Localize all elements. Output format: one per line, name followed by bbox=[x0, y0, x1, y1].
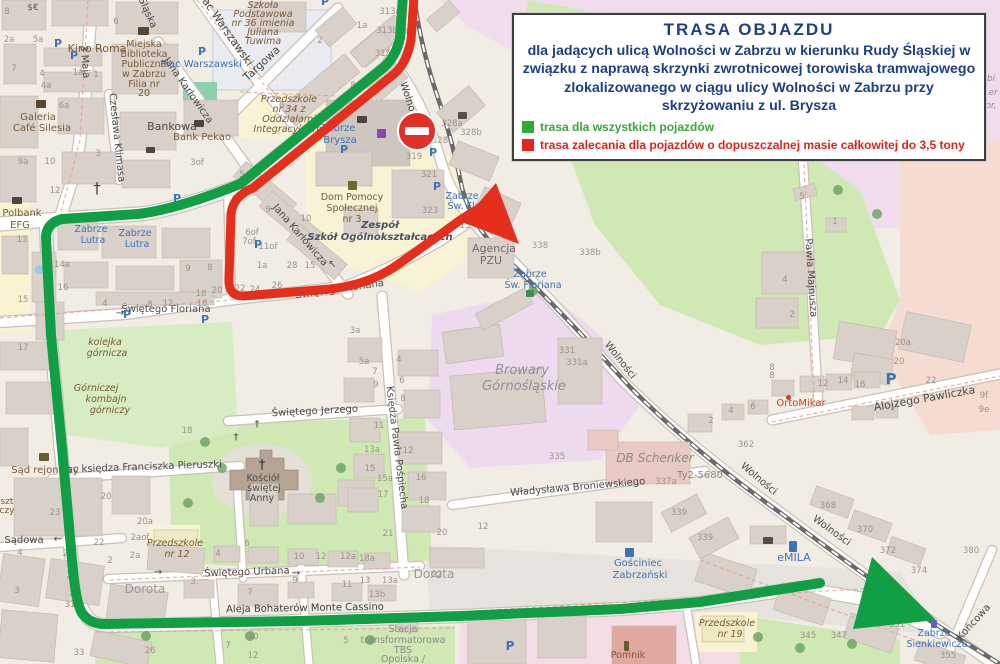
house-number: 20 bbox=[212, 286, 223, 296]
poi-label: 20 bbox=[138, 88, 150, 99]
house-number: 2 bbox=[708, 416, 713, 426]
parking-icon: P bbox=[506, 639, 515, 653]
parking-icon: P bbox=[429, 146, 437, 159]
house-number: 337a bbox=[655, 477, 676, 487]
poi-label: kolejka bbox=[88, 337, 122, 348]
poi-label: nr 12 bbox=[164, 549, 189, 560]
edge-label-fragment: bi bbox=[987, 74, 996, 84]
poi-label: eMILA bbox=[777, 551, 811, 564]
house-number: 3a bbox=[350, 326, 361, 336]
house-number: 17 bbox=[378, 490, 389, 500]
monument-icon bbox=[624, 641, 629, 651]
building bbox=[52, 0, 108, 26]
house-number: 6a bbox=[59, 101, 70, 111]
poi-label: Pomnik bbox=[611, 650, 646, 661]
house-number: 4 bbox=[782, 275, 787, 285]
house-number: 18 bbox=[197, 299, 208, 309]
house-number: 13b bbox=[369, 590, 385, 600]
house-number: 355 bbox=[940, 651, 956, 661]
parking-icon: P bbox=[70, 49, 78, 62]
house-number: 16 bbox=[416, 473, 427, 483]
tree bbox=[795, 643, 805, 653]
house-number: 2 bbox=[789, 310, 794, 320]
swatch-all-vehicles bbox=[522, 121, 534, 133]
house-number: 313b bbox=[376, 26, 398, 36]
house-number: 11 bbox=[374, 421, 385, 431]
church-cross-icon: † bbox=[255, 419, 260, 430]
building bbox=[6, 382, 54, 414]
house-number: 12 bbox=[50, 186, 61, 196]
house-number: 9 bbox=[373, 380, 378, 390]
bank-icon bbox=[12, 197, 22, 204]
house-number: 3 bbox=[95, 149, 100, 159]
house-number: 370 bbox=[857, 525, 873, 535]
house-number: 26 bbox=[145, 646, 156, 656]
house-number: 1a bbox=[73, 68, 84, 78]
house-number: 8 bbox=[147, 300, 152, 310]
house-number: 11 bbox=[342, 580, 353, 590]
house-number: 13a bbox=[364, 445, 380, 455]
house-number: 22 bbox=[432, 570, 443, 580]
poi-label: Dom Pomocy bbox=[321, 192, 384, 203]
house-number: 9a bbox=[18, 157, 29, 167]
house-number: 1a bbox=[257, 261, 268, 271]
house-number: 339 bbox=[697, 533, 713, 543]
building bbox=[398, 350, 438, 376]
building bbox=[288, 494, 336, 524]
building bbox=[430, 548, 484, 568]
house-number: 338 bbox=[532, 241, 548, 251]
house-number: 4 bbox=[17, 548, 22, 558]
legend-title: TRASA OBJAZDU bbox=[522, 20, 976, 40]
house-number: 4 bbox=[728, 406, 733, 416]
transit-label: Św. Floriana bbox=[504, 279, 561, 291]
transit-label: Sienkiewicza bbox=[907, 639, 968, 650]
house-number: 2 bbox=[317, 36, 322, 46]
area-label: Górnośląskie bbox=[482, 379, 566, 394]
building bbox=[184, 580, 214, 598]
house-number: 2a bbox=[130, 551, 141, 561]
house-number: 21 bbox=[383, 529, 394, 539]
house-number: 9 bbox=[185, 264, 190, 274]
house-number: 5 bbox=[799, 192, 804, 202]
house-number: 1a bbox=[357, 21, 368, 31]
parking-icon: P bbox=[123, 308, 131, 321]
house-number: 6 bbox=[399, 376, 404, 386]
house-number: 20a bbox=[137, 517, 153, 527]
parking-icon: P bbox=[321, 0, 329, 8]
poi-label: Zabrzański bbox=[613, 569, 668, 581]
poi-label: Café Silesia bbox=[13, 122, 71, 134]
place-label: Dorota bbox=[125, 582, 166, 596]
house-number: 13 bbox=[17, 235, 28, 245]
building bbox=[162, 228, 210, 258]
house-number: 6 bbox=[244, 539, 249, 549]
oneway-arrow: ← bbox=[54, 534, 62, 545]
house-number: 15 bbox=[305, 261, 316, 271]
house-number: 15 bbox=[18, 295, 29, 305]
house-number: 3 bbox=[190, 577, 195, 587]
house-number: 18 bbox=[182, 426, 193, 436]
house-number: 2aof bbox=[131, 533, 151, 543]
house-number: 15 bbox=[365, 464, 376, 474]
house-number: 13a bbox=[382, 576, 398, 586]
poi-label: Gościniec bbox=[614, 557, 662, 569]
tree bbox=[847, 639, 857, 649]
oneway-arrow: → bbox=[154, 567, 162, 578]
house-number: 4 bbox=[39, 69, 44, 79]
poi-label: Polbank bbox=[2, 208, 41, 219]
house-number: 5 bbox=[343, 636, 348, 646]
no-entry-sign bbox=[398, 112, 436, 150]
house-number: 4 bbox=[396, 355, 401, 365]
bank-icon bbox=[194, 120, 204, 127]
house-number: 6 bbox=[750, 402, 755, 412]
house-number: 14a bbox=[54, 260, 70, 270]
detour-legend-panel: TRASA OBJAZDU dla jadących ulicą Wolnośc… bbox=[512, 13, 986, 161]
legend-heavy-vehicles-label: trasa zalecania dla pojazdów o dopuszcza… bbox=[540, 138, 965, 152]
poi-label: DB Schenker bbox=[616, 451, 694, 465]
detour-map-page: Plac WarszawskiŚląskaTargowaJana Karłowi… bbox=[0, 0, 1000, 664]
transit-label: Zabrze bbox=[513, 269, 546, 280]
tree bbox=[872, 209, 882, 219]
parking-icon: P bbox=[54, 37, 62, 50]
house-number: 5a bbox=[33, 35, 44, 45]
street-label: Sądowa bbox=[4, 535, 43, 546]
house-number: 9f bbox=[980, 391, 989, 401]
house-number: 12 bbox=[163, 299, 174, 309]
building bbox=[402, 506, 440, 532]
building bbox=[0, 553, 45, 606]
house-number: 8 bbox=[769, 363, 774, 373]
house-number: 3of bbox=[190, 158, 205, 168]
house-number: 20 bbox=[437, 528, 448, 538]
poi-label: Społecznej bbox=[326, 203, 377, 214]
house-number: 331 bbox=[559, 346, 575, 356]
house-number: 12a bbox=[340, 552, 356, 562]
house-number: 338b bbox=[579, 248, 601, 258]
house-number: 20 bbox=[101, 492, 112, 502]
edge-label-fragment: or, bbox=[985, 101, 996, 111]
house-number: 9 bbox=[292, 576, 297, 586]
poi-label: Górniczej bbox=[74, 383, 119, 394]
house-number: 17 bbox=[18, 343, 29, 353]
house-number: 331a bbox=[566, 358, 587, 368]
church-cross-icon: † bbox=[259, 458, 266, 473]
parking-icon: P bbox=[340, 143, 348, 156]
house-number: 12 bbox=[316, 552, 327, 562]
building bbox=[596, 502, 652, 542]
house-number: 4a bbox=[41, 81, 52, 91]
house-number: 3 bbox=[14, 586, 19, 596]
house-number: 12 bbox=[818, 379, 829, 389]
legend-row: trasa dla wszystkich pojazdów bbox=[522, 120, 976, 134]
house-number: 328b bbox=[460, 128, 482, 138]
hotel-icon bbox=[625, 548, 634, 557]
poi-label: Bank Pekao bbox=[173, 132, 231, 143]
fuel-icon bbox=[789, 541, 797, 552]
transit-label: Lutra bbox=[81, 235, 106, 246]
poi-label: kombajn bbox=[85, 394, 126, 405]
house-number: 335 bbox=[549, 452, 565, 462]
building bbox=[0, 610, 58, 663]
tree bbox=[315, 493, 325, 503]
shopping-cart-icon bbox=[377, 129, 386, 138]
building bbox=[0, 428, 28, 466]
house-number: 6 bbox=[113, 17, 118, 27]
building bbox=[588, 430, 618, 450]
building bbox=[316, 152, 372, 186]
building bbox=[772, 380, 794, 396]
poi-label: PZU bbox=[480, 254, 502, 267]
house-number: 10 bbox=[294, 552, 305, 562]
house-number: 380 bbox=[963, 546, 979, 556]
house-number: 9 bbox=[265, 205, 270, 215]
house-number: 1 bbox=[93, 70, 98, 80]
poi-label: Ty2-5680 bbox=[676, 470, 723, 481]
parking-icon: P bbox=[198, 45, 206, 58]
poi-label: Przedszkole bbox=[699, 618, 755, 629]
building bbox=[852, 406, 874, 420]
house-number: 8 bbox=[400, 394, 405, 404]
building bbox=[4, 44, 36, 84]
transit-label: Plac Warszawski bbox=[160, 59, 242, 70]
house-number: 321 bbox=[421, 170, 437, 180]
bank-icon bbox=[146, 147, 155, 153]
house-number: 8 bbox=[207, 263, 212, 273]
house-number: 20a bbox=[895, 338, 911, 348]
poi-label: nr 3 bbox=[343, 214, 362, 225]
building bbox=[62, 152, 116, 184]
building bbox=[112, 476, 150, 514]
playground-icon bbox=[526, 290, 534, 297]
house-number: 18a bbox=[359, 554, 375, 564]
house-number: 16 bbox=[58, 283, 69, 293]
house-number: 10 bbox=[248, 632, 259, 642]
house-number: 368 bbox=[820, 501, 836, 511]
house-number: 339 bbox=[671, 508, 687, 518]
house-number: 12 bbox=[478, 522, 489, 532]
house-number: 10 bbox=[45, 157, 56, 167]
house-number: 2a bbox=[4, 35, 15, 45]
area-label: Browary bbox=[495, 363, 549, 378]
house-number: 362 bbox=[738, 440, 754, 450]
house-number: 22 bbox=[926, 376, 937, 386]
house-number: 23 bbox=[50, 508, 61, 518]
house-number: 374 bbox=[911, 566, 927, 576]
house-number: 16 bbox=[855, 380, 866, 390]
house-number: 2 bbox=[107, 556, 112, 566]
house-number: 5a bbox=[359, 357, 370, 367]
house-number: 7 bbox=[372, 367, 377, 377]
parking-icon: P bbox=[886, 370, 897, 388]
house-number: 15a bbox=[377, 474, 393, 484]
swatch-heavy-vehicles bbox=[522, 139, 534, 151]
tree bbox=[183, 498, 193, 508]
house-number: 7 bbox=[11, 64, 16, 74]
church-cross-icon: † bbox=[93, 179, 101, 197]
transit-label: Zabrze bbox=[917, 628, 950, 639]
poi-label: górniczy bbox=[90, 405, 131, 416]
parking-icon: P bbox=[201, 313, 209, 326]
house-number: 319 bbox=[406, 152, 422, 162]
building bbox=[348, 488, 378, 512]
house-number: 323 bbox=[422, 206, 438, 216]
book-icon bbox=[138, 27, 149, 35]
museum-icon bbox=[36, 100, 46, 108]
house-number: 12 bbox=[248, 651, 259, 661]
bank-icon bbox=[357, 116, 367, 123]
tram-stop-icon bbox=[931, 620, 937, 628]
house-number: 18 bbox=[196, 289, 207, 299]
building bbox=[116, 266, 174, 290]
house-number: 345 bbox=[800, 631, 816, 641]
house-number: 4 bbox=[215, 549, 220, 559]
house-number: 12 bbox=[403, 446, 414, 456]
poi-label: Przedszkole bbox=[147, 538, 203, 549]
house-number: 347 bbox=[831, 631, 847, 641]
transit-label: Zabrze bbox=[118, 228, 151, 239]
building bbox=[64, 262, 108, 288]
poi-label: nr 19 bbox=[717, 629, 742, 640]
building bbox=[404, 390, 440, 418]
poi-label: Galeria bbox=[20, 112, 56, 123]
poi-label: Tuwima bbox=[245, 36, 282, 47]
poi-label: EFG bbox=[10, 220, 30, 231]
house-number: 20 bbox=[894, 357, 905, 367]
currency-exchange-icon: $€ bbox=[27, 3, 39, 13]
transit-label: Lutra bbox=[125, 239, 150, 250]
poi-label: Anny bbox=[250, 493, 275, 504]
social-facility-icon bbox=[348, 181, 357, 190]
clinic-dot-icon bbox=[786, 395, 791, 400]
church-cross-icon: † bbox=[234, 432, 239, 443]
house-number: 8 bbox=[279, 101, 284, 111]
house-number: 8 bbox=[4, 7, 9, 17]
building bbox=[538, 616, 586, 658]
house-number: 1 bbox=[832, 217, 837, 227]
house-number: 13 bbox=[360, 576, 371, 586]
house-number: 9e bbox=[979, 405, 990, 415]
poi-label: OrtoMikar bbox=[776, 398, 826, 409]
transit-label: Zabrze bbox=[74, 224, 107, 235]
building bbox=[344, 378, 374, 402]
edge-label-fragment: er bbox=[988, 88, 999, 98]
tree bbox=[833, 185, 843, 195]
court-scales-icon bbox=[39, 453, 49, 461]
house-number: 10 bbox=[301, 214, 312, 224]
poi-label: Stacja bbox=[388, 624, 417, 635]
house-number: 22 bbox=[94, 538, 105, 548]
poi-label: Opolska / bbox=[381, 654, 426, 664]
legend-body: dla jadących ulicą Wolności w Zabrzu w k… bbox=[522, 42, 976, 116]
building bbox=[248, 547, 278, 563]
building bbox=[468, 620, 526, 664]
house-number: 18 bbox=[419, 496, 430, 506]
legend-all-vehicles-label: trasa dla wszystkich pojazdów bbox=[540, 120, 714, 134]
tree bbox=[753, 632, 763, 642]
house-number: 7 bbox=[247, 588, 252, 598]
building bbox=[14, 478, 102, 536]
tree bbox=[200, 437, 210, 447]
tree bbox=[141, 631, 151, 641]
poi-label: górnicza bbox=[87, 348, 128, 359]
house-number: 33 bbox=[74, 648, 85, 658]
house-number: 28 bbox=[287, 261, 298, 271]
house-number: 7 bbox=[225, 641, 230, 651]
legend-row: trasa zalecania dla pojazdów o dopuszcza… bbox=[522, 138, 976, 152]
car-icon bbox=[763, 537, 773, 544]
house-number: 372 bbox=[880, 546, 896, 556]
parking-icon: P bbox=[254, 238, 262, 251]
edge-label-fragment: czy bbox=[0, 506, 15, 516]
tree bbox=[336, 463, 346, 473]
poi-label: Zespół bbox=[360, 219, 400, 231]
house-number: 14 bbox=[838, 376, 849, 386]
people-icon bbox=[458, 112, 467, 119]
building bbox=[122, 160, 170, 188]
house-number: 4 bbox=[102, 299, 107, 309]
parking-icon: P bbox=[433, 180, 441, 193]
